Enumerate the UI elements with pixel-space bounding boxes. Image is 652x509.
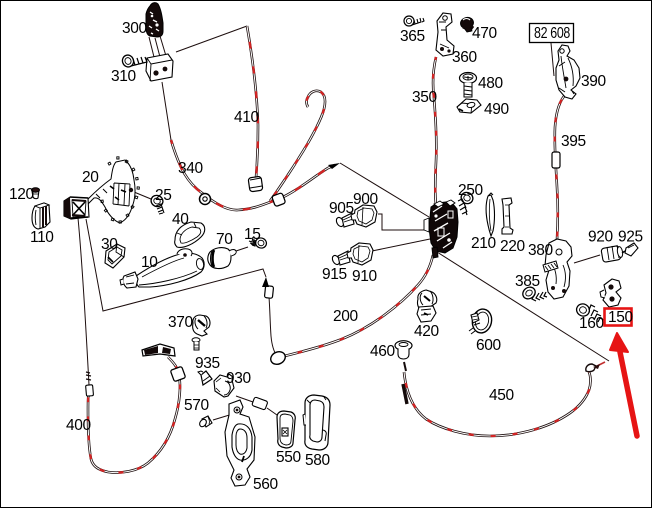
svg-text:365: 365: [400, 28, 425, 45]
svg-text:120: 120: [9, 186, 34, 203]
svg-text:70: 70: [216, 231, 233, 248]
svg-text:380: 380: [528, 242, 553, 259]
svg-text:930: 930: [226, 370, 251, 387]
svg-text:82 608: 82 608: [534, 25, 570, 42]
svg-text:395: 395: [561, 133, 586, 150]
svg-text:20: 20: [82, 169, 99, 186]
svg-text:360: 360: [452, 49, 477, 66]
svg-text:925: 925: [618, 229, 643, 246]
svg-text:470: 470: [472, 25, 497, 42]
svg-text:560: 560: [253, 476, 278, 493]
svg-text:110: 110: [30, 229, 54, 246]
svg-text:920: 920: [588, 229, 613, 246]
svg-text:420: 420: [414, 323, 439, 340]
svg-text:310: 310: [111, 68, 136, 85]
svg-text:570: 570: [184, 397, 209, 414]
svg-text:490: 490: [484, 101, 509, 118]
svg-text:390: 390: [581, 73, 606, 90]
svg-text:200: 200: [333, 308, 358, 325]
svg-text:10: 10: [141, 254, 158, 271]
svg-text:410: 410: [234, 109, 259, 126]
svg-text:250: 250: [458, 182, 483, 199]
svg-text:550: 550: [276, 449, 301, 466]
svg-text:600: 600: [476, 337, 501, 354]
svg-text:210: 210: [471, 235, 496, 252]
svg-text:15: 15: [244, 226, 260, 243]
svg-text:480: 480: [478, 75, 503, 92]
svg-text:340: 340: [178, 160, 203, 177]
svg-text:30: 30: [101, 236, 118, 253]
svg-text:40: 40: [172, 211, 189, 228]
svg-text:900: 900: [353, 191, 378, 208]
svg-text:450: 450: [489, 387, 514, 404]
svg-text:910: 910: [352, 268, 377, 285]
svg-text:370: 370: [168, 314, 193, 331]
svg-text:25: 25: [155, 187, 171, 204]
svg-text:150: 150: [608, 309, 633, 326]
svg-text:160: 160: [579, 315, 604, 332]
svg-text:300: 300: [122, 20, 147, 37]
svg-text:385: 385: [515, 273, 540, 290]
svg-text:400: 400: [66, 417, 91, 434]
svg-text:220: 220: [500, 238, 525, 255]
svg-text:350: 350: [412, 89, 437, 106]
svg-text:915: 915: [322, 266, 347, 283]
svg-text:580: 580: [305, 452, 330, 469]
svg-text:460: 460: [370, 343, 395, 360]
svg-text:905: 905: [329, 200, 354, 217]
svg-text:935: 935: [195, 355, 220, 372]
